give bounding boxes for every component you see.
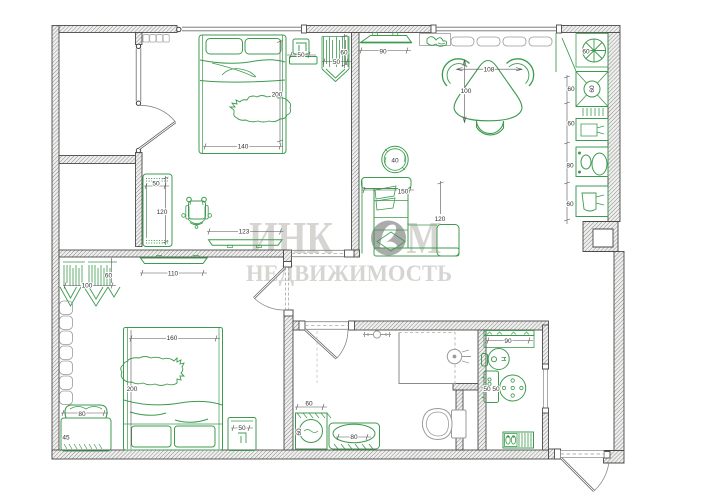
svg-text:80: 80 bbox=[566, 163, 574, 170]
svg-text:60: 60 bbox=[340, 50, 348, 57]
svg-text:45: 45 bbox=[62, 435, 70, 442]
svg-text:50 50: 50 50 bbox=[483, 386, 500, 393]
svg-text:90: 90 bbox=[379, 49, 387, 56]
svg-text:120: 120 bbox=[157, 209, 168, 216]
svg-text:40: 40 bbox=[391, 158, 399, 165]
svg-text:60: 60 bbox=[589, 85, 596, 93]
svg-text:60: 60 bbox=[567, 86, 575, 93]
svg-text:140: 140 bbox=[238, 144, 249, 151]
svg-text:60: 60 bbox=[566, 201, 574, 208]
svg-text:123: 123 bbox=[239, 229, 250, 236]
svg-text:50: 50 bbox=[238, 425, 246, 432]
svg-text:60: 60 bbox=[305, 401, 313, 408]
svg-text:50: 50 bbox=[297, 52, 305, 59]
svg-text:160: 160 bbox=[167, 335, 178, 342]
svg-text:90: 90 bbox=[504, 338, 512, 345]
svg-text:60: 60 bbox=[296, 428, 303, 436]
svg-text:50: 50 bbox=[333, 59, 341, 66]
svg-text:100: 100 bbox=[82, 283, 93, 290]
svg-text:80: 80 bbox=[350, 434, 358, 441]
svg-text:100: 100 bbox=[461, 88, 472, 95]
svg-text:120: 120 bbox=[435, 216, 446, 223]
svg-text:150: 150 bbox=[398, 189, 409, 196]
svg-text:60: 60 bbox=[582, 49, 590, 56]
svg-text:108: 108 bbox=[484, 67, 495, 74]
svg-text:200: 200 bbox=[127, 386, 138, 393]
svg-text:110: 110 bbox=[168, 271, 179, 278]
svg-text:60: 60 bbox=[105, 273, 113, 280]
svg-text:200: 200 bbox=[272, 92, 283, 99]
svg-text:60: 60 bbox=[567, 121, 575, 128]
svg-text:50: 50 bbox=[152, 181, 160, 188]
svg-text:80: 80 bbox=[78, 411, 86, 418]
